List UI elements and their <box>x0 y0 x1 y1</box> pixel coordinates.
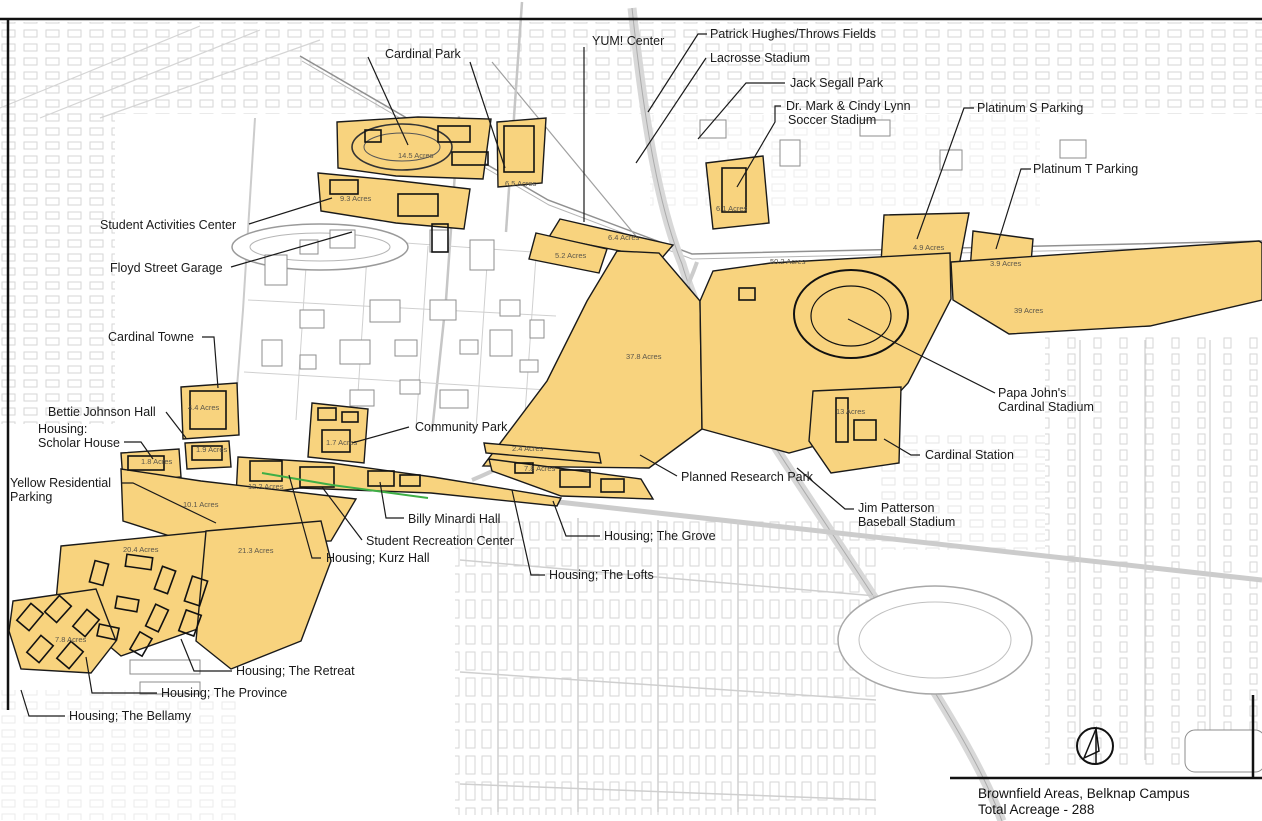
acreage-label: 20.4 Acres <box>123 545 159 554</box>
callout-student-activities-center: Student Activities Center <box>100 218 236 232</box>
acreage-label: 7.8 Acres <box>524 464 556 473</box>
callout-cardinal-station: Cardinal Station <box>925 448 1014 462</box>
brownfield-bellamy <box>9 589 116 673</box>
callout-lacrosse-stadium: Lacrosse Stadium <box>710 51 810 65</box>
callout-housing-the-lofts: Housing; The Lofts <box>549 568 654 582</box>
leader-line <box>202 337 218 388</box>
callout-papa-johns-line1: Papa John's <box>998 386 1066 400</box>
callout-jim-patterson-line1: Jim Patterson <box>858 501 934 515</box>
acreage-label: 6.1 Acres <box>716 204 748 213</box>
acreage-label: 1.8 Acres <box>141 457 173 466</box>
callout-platinum-s-parking: Platinum S Parking <box>977 101 1083 115</box>
acreage-label: 39 Acres <box>1014 306 1043 315</box>
brownfield-retreat-east <box>196 521 331 669</box>
callout-jack-segall-park: Jack Segall Park <box>790 76 884 90</box>
callout-housing-the-province: Housing; The Province <box>161 686 287 700</box>
callout-jim-patterson-line2: Baseball Stadium <box>858 515 955 529</box>
acreage-label: 21.3 Acres <box>238 546 274 555</box>
acreage-label: 12.2 Acres <box>248 482 284 491</box>
acreage-label: 1.9 Acres <box>196 445 228 454</box>
callout-housing-the-grove: Housing; The Grove <box>604 529 716 543</box>
acreage-label: 4.4 Acres <box>188 403 220 412</box>
acreage-label: 14.5 Acres <box>398 151 434 160</box>
brownfield-cardinal-station <box>809 387 901 473</box>
callout-bettie-johnson-hall: Bettie Johnson Hall <box>48 405 156 419</box>
callout-floyd-street-garage: Floyd Street Garage <box>110 261 223 275</box>
acreage-label: 7.8 Acres <box>55 635 87 644</box>
callout-soccer-stadium-line2: Soccer Stadium <box>788 113 876 127</box>
acreage-label: 50.2 Acres <box>770 257 806 266</box>
acreage-label: 3.9 Acres <box>990 259 1022 268</box>
callout-papa-johns-line2: Cardinal Stadium <box>998 400 1094 414</box>
leader-line <box>249 198 332 224</box>
acreage-label: 10.1 Acres <box>183 500 219 509</box>
acreage-label: 9.3 Acres <box>340 194 372 203</box>
acreage-label: 4.9 Acres <box>913 243 945 252</box>
brownfield-community-park <box>308 403 368 463</box>
callout-yum-center: YUM! Center <box>592 34 664 48</box>
map-caption: Brownfield Areas, Belknap Campus Total A… <box>978 786 1190 817</box>
callout-housing-kurz-hall: Housing; Kurz Hall <box>326 551 430 565</box>
callout-patrick-hughes-throws-fields: Patrick Hughes/Throws Fields <box>710 27 876 41</box>
acreage-label: 5.2 Acres <box>555 251 587 260</box>
acreage-label: 13 Acres <box>836 407 865 416</box>
caption-title: Brownfield Areas, Belknap Campus <box>978 786 1190 801</box>
callout-community-park: Community Park <box>415 420 508 434</box>
callout-yellow-residential-line1: Yellow Residential <box>10 476 111 490</box>
belknap-campus-map: 14.5 Acres 6.5 Acres 9.3 Acres 5.2 Acres… <box>0 0 1262 821</box>
map-canvas: 14.5 Acres 6.5 Acres 9.3 Acres 5.2 Acres… <box>0 0 1262 821</box>
acreage-label: 6.5 Acres <box>505 179 537 188</box>
acreage-label: 6.4 Acres <box>608 233 640 242</box>
brownfield-research-park <box>483 251 702 468</box>
acreage-label: 37.8 Acres <box>626 352 662 361</box>
callout-planned-research-park: Planned Research Park <box>681 470 814 484</box>
callout-scholar-house-line1: Housing: <box>38 422 87 436</box>
callout-student-recreation-center: Student Recreation Center <box>366 534 514 548</box>
brownfield-soccer-stadium <box>706 156 769 229</box>
callout-billy-minardi-hall: Billy Minardi Hall <box>408 512 500 526</box>
callout-scholar-house-line2: Scholar House <box>38 436 120 450</box>
callout-soccer-stadium-line1: Dr. Mark & Cindy Lynn <box>786 99 911 113</box>
callout-housing-the-retreat: Housing; The Retreat <box>236 664 355 678</box>
caption-total-acreage: Total Acreage - 288 <box>978 802 1094 817</box>
callout-yellow-residential-line2: Parking <box>10 490 52 504</box>
callout-cardinal-park: Cardinal Park <box>385 47 461 61</box>
callout-cardinal-towne: Cardinal Towne <box>108 330 194 344</box>
callout-platinum-t-parking: Platinum T Parking <box>1033 162 1138 176</box>
callout-housing-the-bellamy: Housing; The Bellamy <box>69 709 192 723</box>
acreage-label: 2.4 Acres <box>512 444 544 453</box>
